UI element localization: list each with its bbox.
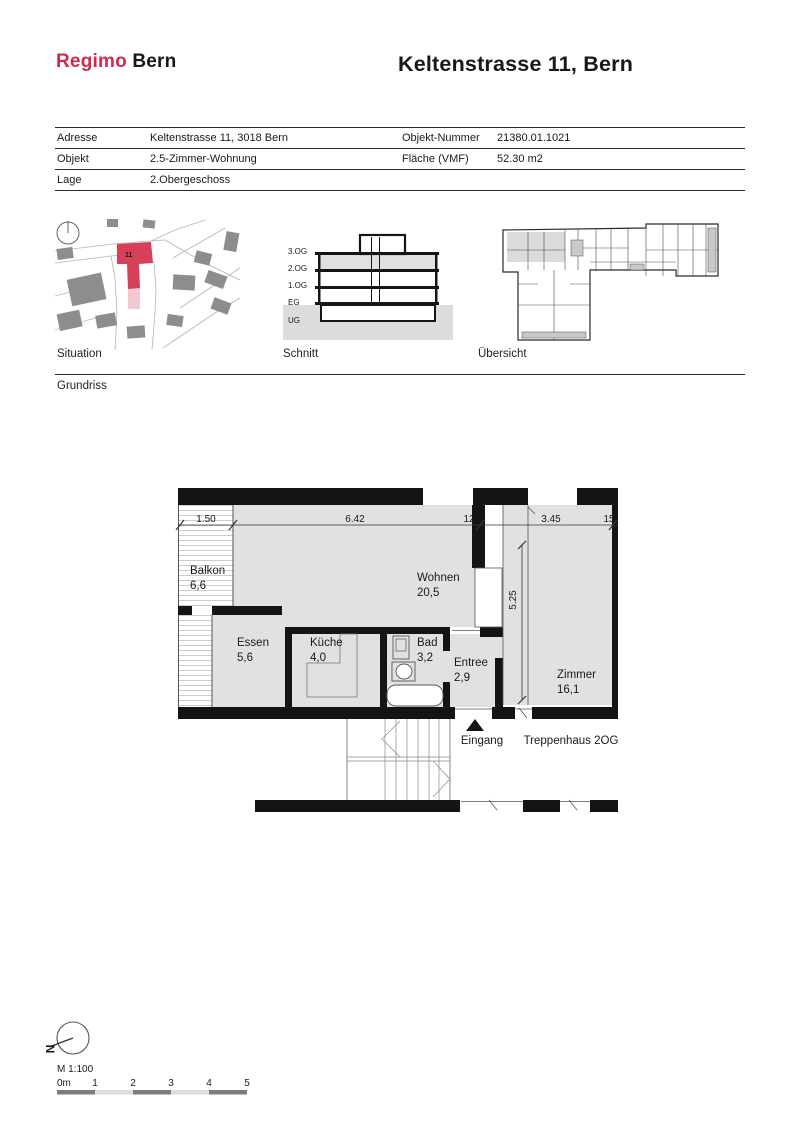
building-number: 11 — [125, 252, 133, 259]
building-11-shape — [117, 242, 153, 289]
row-value — [495, 170, 745, 190]
map-buildings — [56, 219, 239, 339]
room-name: Bad — [417, 637, 437, 649]
overview-plan — [478, 220, 728, 350]
tick-label: 1 — [92, 1078, 98, 1089]
entrance-arrow-icon — [466, 719, 484, 731]
table-row: Adresse Keltenstrasse 11, 3018 Bern Obje… — [55, 128, 745, 149]
window-opening — [423, 488, 473, 505]
floor-label: UG — [288, 316, 300, 325]
room-area: 20,5 — [417, 587, 439, 599]
row-label: Fläche (VMF) — [400, 149, 495, 169]
basement-box — [321, 305, 435, 321]
room-name: Essen — [237, 637, 269, 649]
floor-label: 2.OG — [288, 264, 307, 273]
highlighted-building: 11 — [117, 242, 153, 309]
section-drawing: 3.OG 2.OG 1.OG EG UG — [283, 226, 453, 346]
tick-label: 3 — [168, 1078, 174, 1089]
sink-icon — [393, 636, 409, 659]
floor-label: EG — [288, 298, 300, 307]
section-divider — [55, 374, 745, 375]
room-area: 2,9 — [454, 672, 470, 684]
room-area: 6,6 — [190, 580, 206, 592]
stairs — [347, 719, 450, 800]
wall-niche — [475, 568, 502, 627]
dim-label: 3.45 — [541, 514, 561, 525]
schnitt-label: Schnitt — [283, 348, 318, 360]
row-value: 52.30 m2 — [495, 149, 745, 169]
grundriss-label: Grundriss — [57, 380, 107, 392]
row-label: Objekt — [55, 149, 148, 169]
stairwell-label: Treppenhaus 2OG — [524, 735, 619, 747]
logo-secondary: Bern — [132, 51, 176, 72]
uebersicht-label: Übersicht — [478, 348, 527, 360]
room-name: Balkon — [190, 565, 225, 577]
scale-tick-labels: 0m 1 2 3 4 5 — [57, 1078, 250, 1089]
tick-label: 4 — [206, 1078, 212, 1089]
room-name: Küche — [310, 637, 343, 649]
table-row: Objekt 2.5-Zimmer-Wohnung Fläche (VMF) 5… — [55, 149, 745, 170]
page-title: Keltenstrasse 11, Bern — [398, 52, 633, 77]
scale-bar: M 1:100 0m 1 2 3 4 5 — [55, 1062, 265, 1098]
dim-label: 1.50 — [196, 514, 216, 525]
floorplan-sheet: Regimo Bern Keltenstrasse 11, Bern Adres… — [0, 0, 800, 1131]
table-row: Lage 2.Obergeschoss — [55, 170, 745, 191]
room-area: 16,1 — [557, 684, 579, 696]
floorplan-drawing: Balkon 6,6 Wohnen 20,5 Essen 5,6 Küche 4… — [167, 478, 637, 818]
row-value: 2.Obergeschoss — [148, 170, 400, 190]
object-info-table: Adresse Keltenstrasse 11, 3018 Bern Obje… — [55, 127, 745, 191]
dim-label: 15 — [603, 514, 615, 525]
north-indicator-icon — [57, 221, 79, 244]
highlighted-apartment — [507, 232, 565, 262]
tick-label: 0m — [57, 1078, 71, 1089]
situation-map: 11 — [55, 218, 240, 350]
room-area: 4,0 — [310, 652, 326, 664]
scale-bar-segments — [57, 1090, 247, 1095]
room-name: Wohnen — [417, 572, 460, 584]
dim-label: 5.25 — [508, 590, 519, 610]
attic-box — [360, 235, 405, 254]
building-extension-pink — [128, 288, 140, 309]
dim-label: 12 — [463, 514, 475, 525]
scale-label: M 1:100 — [57, 1064, 94, 1075]
company-logo: Regimo Bern — [56, 51, 176, 73]
situation-label: Situation — [57, 348, 102, 360]
row-label: Adresse — [55, 128, 148, 148]
row-label: Objekt-Nummer — [400, 128, 495, 148]
dim-label: 6.42 — [345, 514, 365, 525]
floor-label: 1.OG — [288, 281, 307, 290]
logo-primary: Regimo — [56, 51, 127, 72]
room-area: 5,6 — [237, 652, 253, 664]
row-value: 2.5-Zimmer-Wohnung — [148, 149, 400, 169]
highlighted-floor-band — [319, 255, 437, 269]
room-name: Zimmer — [557, 669, 596, 681]
window-opening — [528, 488, 577, 505]
entrance-label: Eingang — [461, 735, 503, 747]
row-label — [400, 170, 495, 190]
room-name: Entree — [454, 657, 488, 669]
row-value: Keltenstrasse 11, 3018 Bern — [148, 128, 400, 148]
north-label: N — [43, 1045, 57, 1054]
floor-label: 3.OG — [288, 247, 307, 256]
room-area: 3,2 — [417, 652, 433, 664]
tick-label: 5 — [244, 1078, 250, 1089]
tick-label: 2 — [130, 1078, 136, 1089]
row-label: Lage — [55, 170, 148, 190]
row-value: 21380.01.1021 — [495, 128, 745, 148]
bathtub-icon — [387, 685, 443, 706]
